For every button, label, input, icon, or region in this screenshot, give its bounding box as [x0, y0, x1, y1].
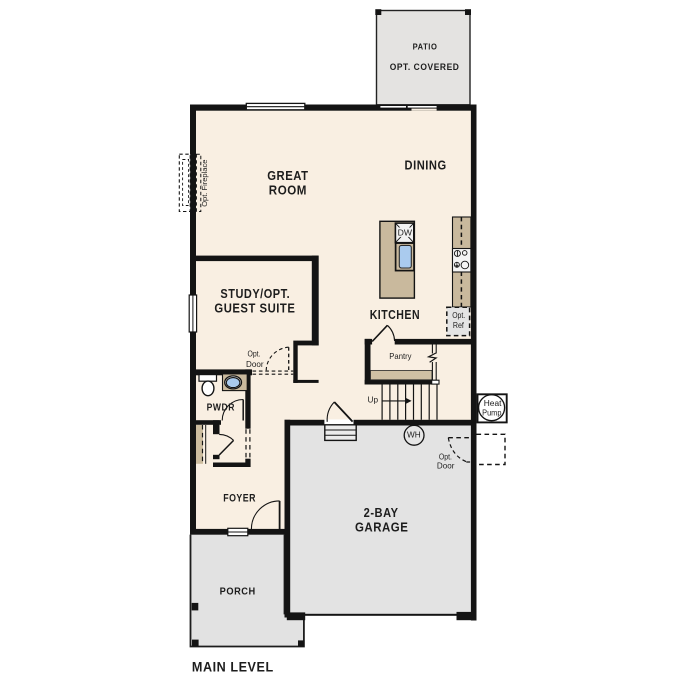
svg-text:Up: Up — [368, 395, 379, 405]
svg-text:Ref: Ref — [453, 321, 465, 330]
svg-text:GREAT: GREAT — [267, 168, 308, 183]
svg-text:KITCHEN: KITCHEN — [370, 307, 420, 322]
svg-text:OPT. COVERED: OPT. COVERED — [390, 62, 460, 72]
svg-text:Heat: Heat — [484, 399, 503, 408]
svg-text:Opt.: Opt. — [452, 311, 465, 320]
svg-text:STUDY/OPT.: STUDY/OPT. — [220, 286, 290, 301]
svg-text:GARAGE: GARAGE — [355, 520, 409, 535]
svg-text:Opt.: Opt. — [439, 452, 452, 461]
svg-text:DW: DW — [398, 227, 412, 237]
svg-text:MAIN LEVEL: MAIN LEVEL — [192, 658, 274, 674]
svg-text:GUEST SUITE: GUEST SUITE — [214, 300, 295, 315]
svg-text:Pantry: Pantry — [389, 351, 412, 361]
svg-text:PWDR: PWDR — [207, 403, 235, 414]
svg-text:Door: Door — [246, 360, 264, 369]
svg-text:Pump: Pump — [482, 408, 502, 417]
svg-text:Opt.: Opt. — [248, 350, 261, 359]
svg-text:PORCH: PORCH — [220, 587, 256, 598]
svg-text:2-BAY: 2-BAY — [364, 505, 399, 520]
svg-text:DINING: DINING — [405, 157, 447, 172]
svg-text:PATIO: PATIO — [413, 42, 438, 51]
svg-text:ROOM: ROOM — [269, 183, 307, 198]
svg-text:Opt. Fireplace: Opt. Fireplace — [200, 160, 209, 207]
svg-text:Door: Door — [437, 462, 455, 471]
svg-text:WH: WH — [407, 430, 421, 439]
svg-text:FOYER: FOYER — [223, 493, 256, 505]
